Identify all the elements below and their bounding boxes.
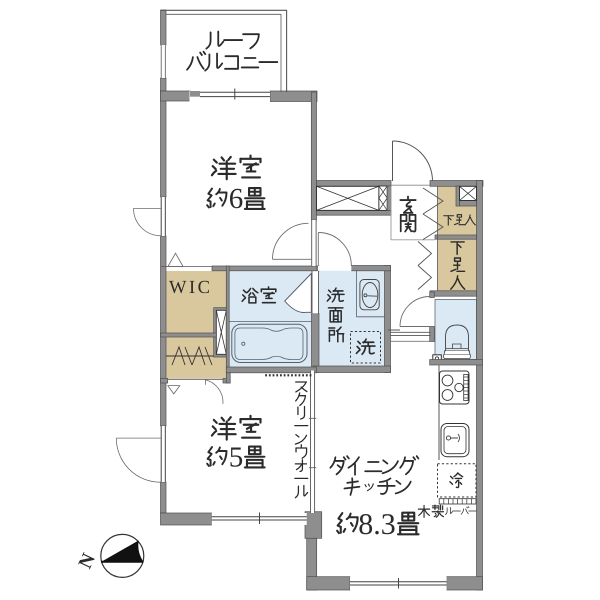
svg-text:N: N [75, 550, 100, 572]
svg-text:6: 6 [229, 183, 244, 215]
svg-text:8.3: 8.3 [358, 508, 396, 541]
svg-text:WIC: WIC [169, 278, 212, 298]
svg-text:5: 5 [229, 441, 244, 473]
